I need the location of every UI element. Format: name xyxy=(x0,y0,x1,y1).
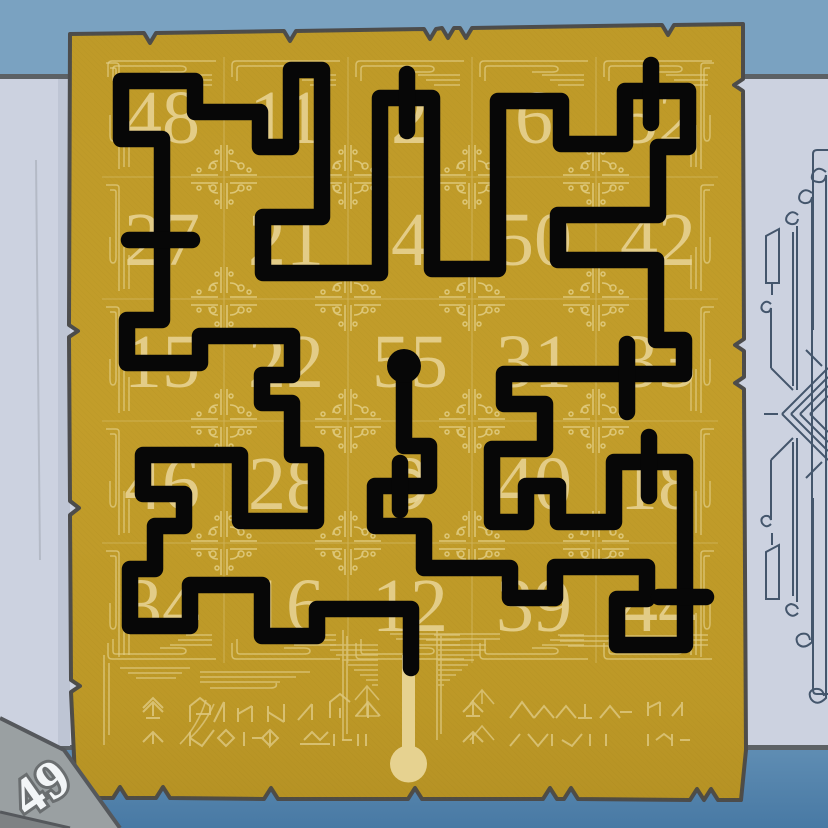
svg-text:4: 4 xyxy=(391,198,429,282)
svg-text:6: 6 xyxy=(515,76,553,160)
